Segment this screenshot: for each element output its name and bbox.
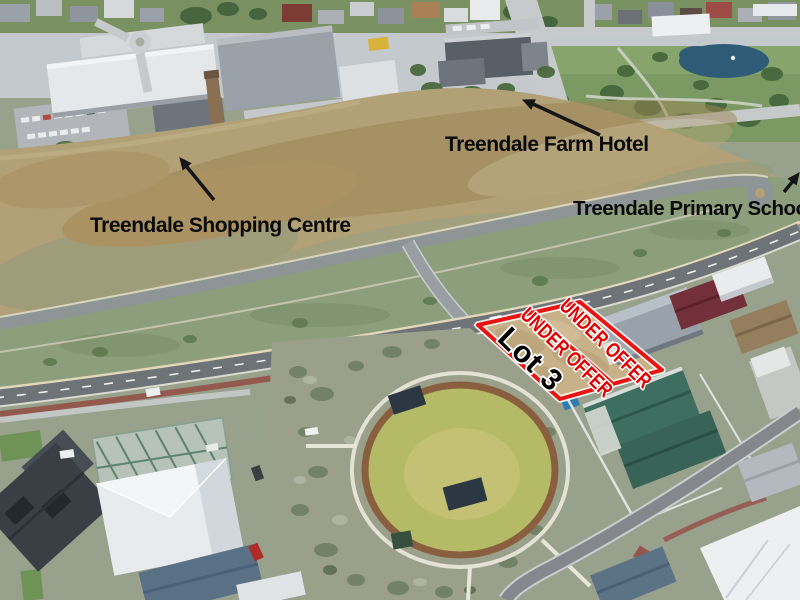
annotation-overlay: UNDER OFFER UNDER OFFER Lot 3 — [0, 0, 800, 600]
arrow-primary-school-icon — [784, 173, 799, 192]
label-shopping-centre: Treendale Shopping Centre — [90, 215, 351, 236]
aerial-photo: UNDER OFFER UNDER OFFER Lot 3 Treendale … — [0, 0, 800, 600]
arrow-shopping-centre-icon — [180, 158, 214, 200]
label-primary-school: Treendale Primary School — [573, 199, 800, 220]
arrow-farm-hotel-icon — [523, 100, 600, 135]
label-farm-hotel: Treendale Farm Hotel — [445, 134, 649, 155]
